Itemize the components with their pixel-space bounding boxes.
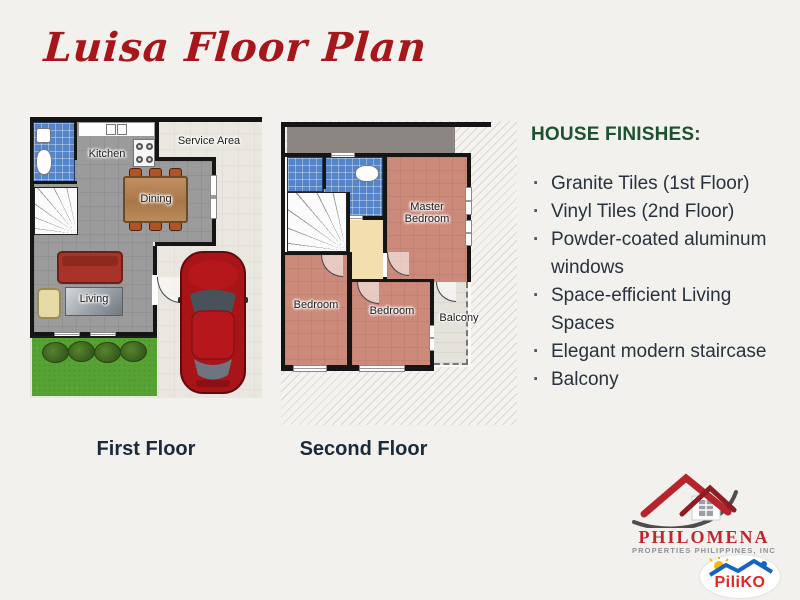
master-window — [465, 187, 472, 215]
page-title: Luisa Floor Plan — [42, 24, 428, 71]
door-opening — [383, 253, 387, 277]
room-label-bedroom-middle: Bedroom — [363, 305, 421, 317]
toilet-fixture — [36, 149, 52, 175]
wall — [159, 157, 216, 161]
room-label-master-bedroom: Master Bedroom — [395, 201, 459, 225]
car-top-view — [178, 249, 248, 396]
hall-floor — [350, 220, 383, 282]
bush — [68, 341, 95, 362]
first-floor-caption: First Floor — [30, 438, 262, 461]
finish-item: Balcony — [531, 366, 787, 394]
staircase — [34, 187, 78, 235]
dining-window — [210, 175, 217, 219]
bush — [42, 342, 69, 363]
first-floor-plan: Kitchen Service Area Dining Living — [30, 117, 262, 398]
room-label-kitchen: Kitchen — [72, 148, 142, 160]
finish-item: Powder-coated aluminum windows — [531, 226, 787, 282]
piliko-badge: PiliKO — [700, 555, 780, 598]
roof-ledge — [287, 127, 455, 153]
armchair — [37, 288, 61, 319]
room-label-dining: Dining — [126, 193, 186, 205]
master-window — [465, 220, 472, 246]
second-floor-plan: Master Bedroom Bedroom Bedroom Balcony — [281, 121, 517, 425]
wall — [33, 181, 77, 184]
wall — [323, 157, 326, 189]
finish-item: Granite Tiles (1st Floor) — [531, 170, 787, 198]
finish-item: Elegant modern staircase — [531, 338, 787, 366]
bedroom-window — [293, 365, 327, 372]
kitchen-sink — [117, 124, 127, 135]
house-finishes-list: Granite Tiles (1st Floor) Vinyl Tiles (2… — [531, 170, 787, 394]
philomena-house-icon — [630, 472, 742, 528]
second-floor-caption: Second Floor — [281, 438, 446, 461]
house-finishes-panel: HOUSE FINISHES: Granite Tiles (1st Floor… — [531, 124, 787, 394]
kitchen-sink — [106, 124, 116, 135]
bush — [120, 341, 147, 362]
room-label-balcony: Balcony — [433, 312, 485, 324]
finish-item: Vinyl Tiles (2nd Floor) — [531, 198, 787, 226]
sink-fixture — [36, 128, 51, 143]
house-finishes-heading: HOUSE FINISHES: — [531, 124, 787, 146]
company-name: PHILOMENA — [626, 527, 782, 548]
room-label-bedroom-left: Bedroom — [287, 299, 345, 311]
room-label-living: Living — [66, 293, 122, 305]
wall — [155, 242, 216, 246]
toilet-fixture — [355, 165, 379, 182]
bedroom-window — [359, 365, 405, 372]
company-subtitle: PROPERTIES PHILIPPINES, INC — [626, 546, 782, 555]
flyer-canvas: Luisa Floor Plan — [0, 0, 800, 600]
wall — [155, 122, 159, 161]
sofa — [57, 251, 123, 284]
finish-item: Space-efficient Living Spaces — [531, 282, 787, 338]
bush — [94, 342, 121, 363]
piliko-wordmark: PiliKO — [700, 574, 780, 592]
room-label-service-area: Service Area — [160, 135, 258, 147]
staircase — [287, 192, 347, 252]
bathroom-floor — [287, 157, 323, 192]
